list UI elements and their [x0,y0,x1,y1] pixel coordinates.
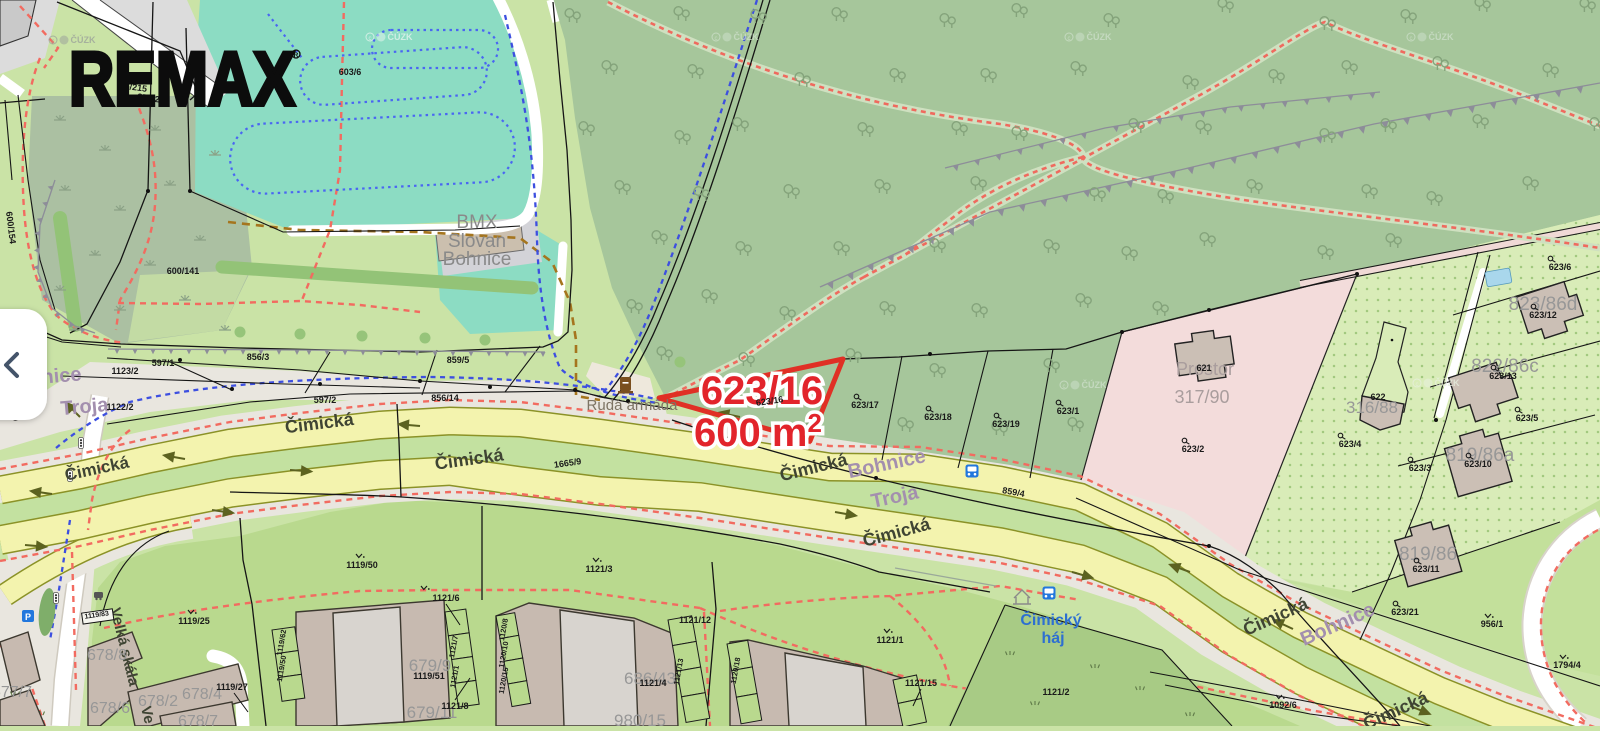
svg-text:P: P [25,612,31,622]
svg-text:Troja: Troja [60,394,110,420]
svg-text:R: R [294,52,299,59]
svg-text:REMAX: REMAX [69,37,295,122]
svg-text:856/3: 856/3 [247,352,270,362]
svg-text:1121/4: 1121/4 [639,678,666,688]
svg-text:c: c [1063,384,1066,390]
svg-text:1121/12: 1121/12 [679,615,711,625]
svg-text:623/11: 623/11 [1412,564,1439,574]
svg-text:623/21: 623/21 [1391,607,1419,617]
svg-text:Bohnice: Bohnice [443,249,512,270]
svg-text:BMX: BMX [456,212,498,233]
svg-text:1121/1: 1121/1 [876,635,903,645]
svg-text:1121/6: 1121/6 [432,593,459,603]
svg-text:980/15: 980/15 [614,711,666,726]
svg-text:1119/51: 1119/51 [413,671,445,681]
svg-text:1123/2: 1123/2 [111,366,138,376]
svg-text:623/2: 623/2 [1182,444,1205,454]
svg-text:ČÚZK: ČÚZK [388,31,413,42]
svg-text:ČÚZK: ČÚZK [734,31,759,42]
svg-text:1121/8: 1121/8 [441,701,468,711]
svg-text:622: 622 [1370,392,1385,402]
svg-text:623/19: 623/19 [992,419,1020,429]
svg-text:597/1: 597/1 [152,358,175,368]
svg-text:678/7: 678/7 [178,713,218,726]
svg-text:600 m2: 600 m2 [694,408,822,455]
svg-text:1119/50: 1119/50 [346,560,378,570]
svg-text:ČÚZK: ČÚZK [1429,31,1454,42]
svg-text:317/90: 317/90 [1174,387,1229,407]
svg-text:1121/3: 1121/3 [585,564,612,574]
svg-text:678/8: 678/8 [87,647,127,664]
svg-text:c: c [1410,36,1413,42]
svg-text:1121/15: 1121/15 [905,678,937,688]
svg-text:623/5: 623/5 [1516,413,1539,423]
svg-text:ČÚZK: ČÚZK [1082,379,1107,390]
svg-text:Rudá armáda: Rudá armáda [587,397,679,414]
svg-text:621: 621 [1196,363,1211,373]
svg-text:623/3: 623/3 [1409,463,1432,473]
svg-text:678/6: 678/6 [90,700,130,717]
svg-text:623/6: 623/6 [1549,262,1572,272]
svg-text:1121/2: 1121/2 [1042,687,1069,697]
svg-text:603/6: 603/6 [339,67,362,77]
svg-text:677/7: 677/7 [0,684,32,701]
svg-text:623/10: 623/10 [1464,459,1492,469]
svg-text:859/5: 859/5 [447,355,470,365]
svg-text:623/13: 623/13 [1489,371,1517,381]
svg-text:Čimický: Čimický [1020,610,1081,629]
svg-text:1119/27: 1119/27 [216,682,248,692]
svg-text:623/1: 623/1 [1057,406,1080,416]
svg-text:623/17: 623/17 [851,400,879,410]
svg-text:c: c [1416,382,1419,388]
svg-text:623/12: 623/12 [1529,310,1557,320]
svg-text:819/86: 819/86 [1399,544,1457,565]
svg-text:856/14: 856/14 [431,393,459,403]
svg-text:c: c [369,36,372,42]
svg-text:1794/4: 1794/4 [1553,660,1581,670]
svg-text:623/4: 623/4 [1339,439,1362,449]
svg-text:600/141: 600/141 [167,266,200,276]
svg-text:háj: háj [1041,630,1064,647]
svg-text:1119/25: 1119/25 [178,616,210,626]
svg-text:c: c [1068,36,1071,42]
svg-text:c: c [52,39,55,45]
svg-text:1122/2: 1122/2 [106,402,133,412]
svg-text:623/18: 623/18 [924,412,952,422]
svg-text:c: c [715,36,718,42]
svg-text:1092/6: 1092/6 [1269,700,1297,710]
svg-text:678/2: 678/2 [138,693,178,710]
svg-text:956/1: 956/1 [1481,619,1504,629]
svg-text:597/2: 597/2 [314,395,337,405]
svg-text:ČÚZK: ČÚZK [1435,377,1460,388]
svg-text:ČÚZK: ČÚZK [1087,31,1112,42]
